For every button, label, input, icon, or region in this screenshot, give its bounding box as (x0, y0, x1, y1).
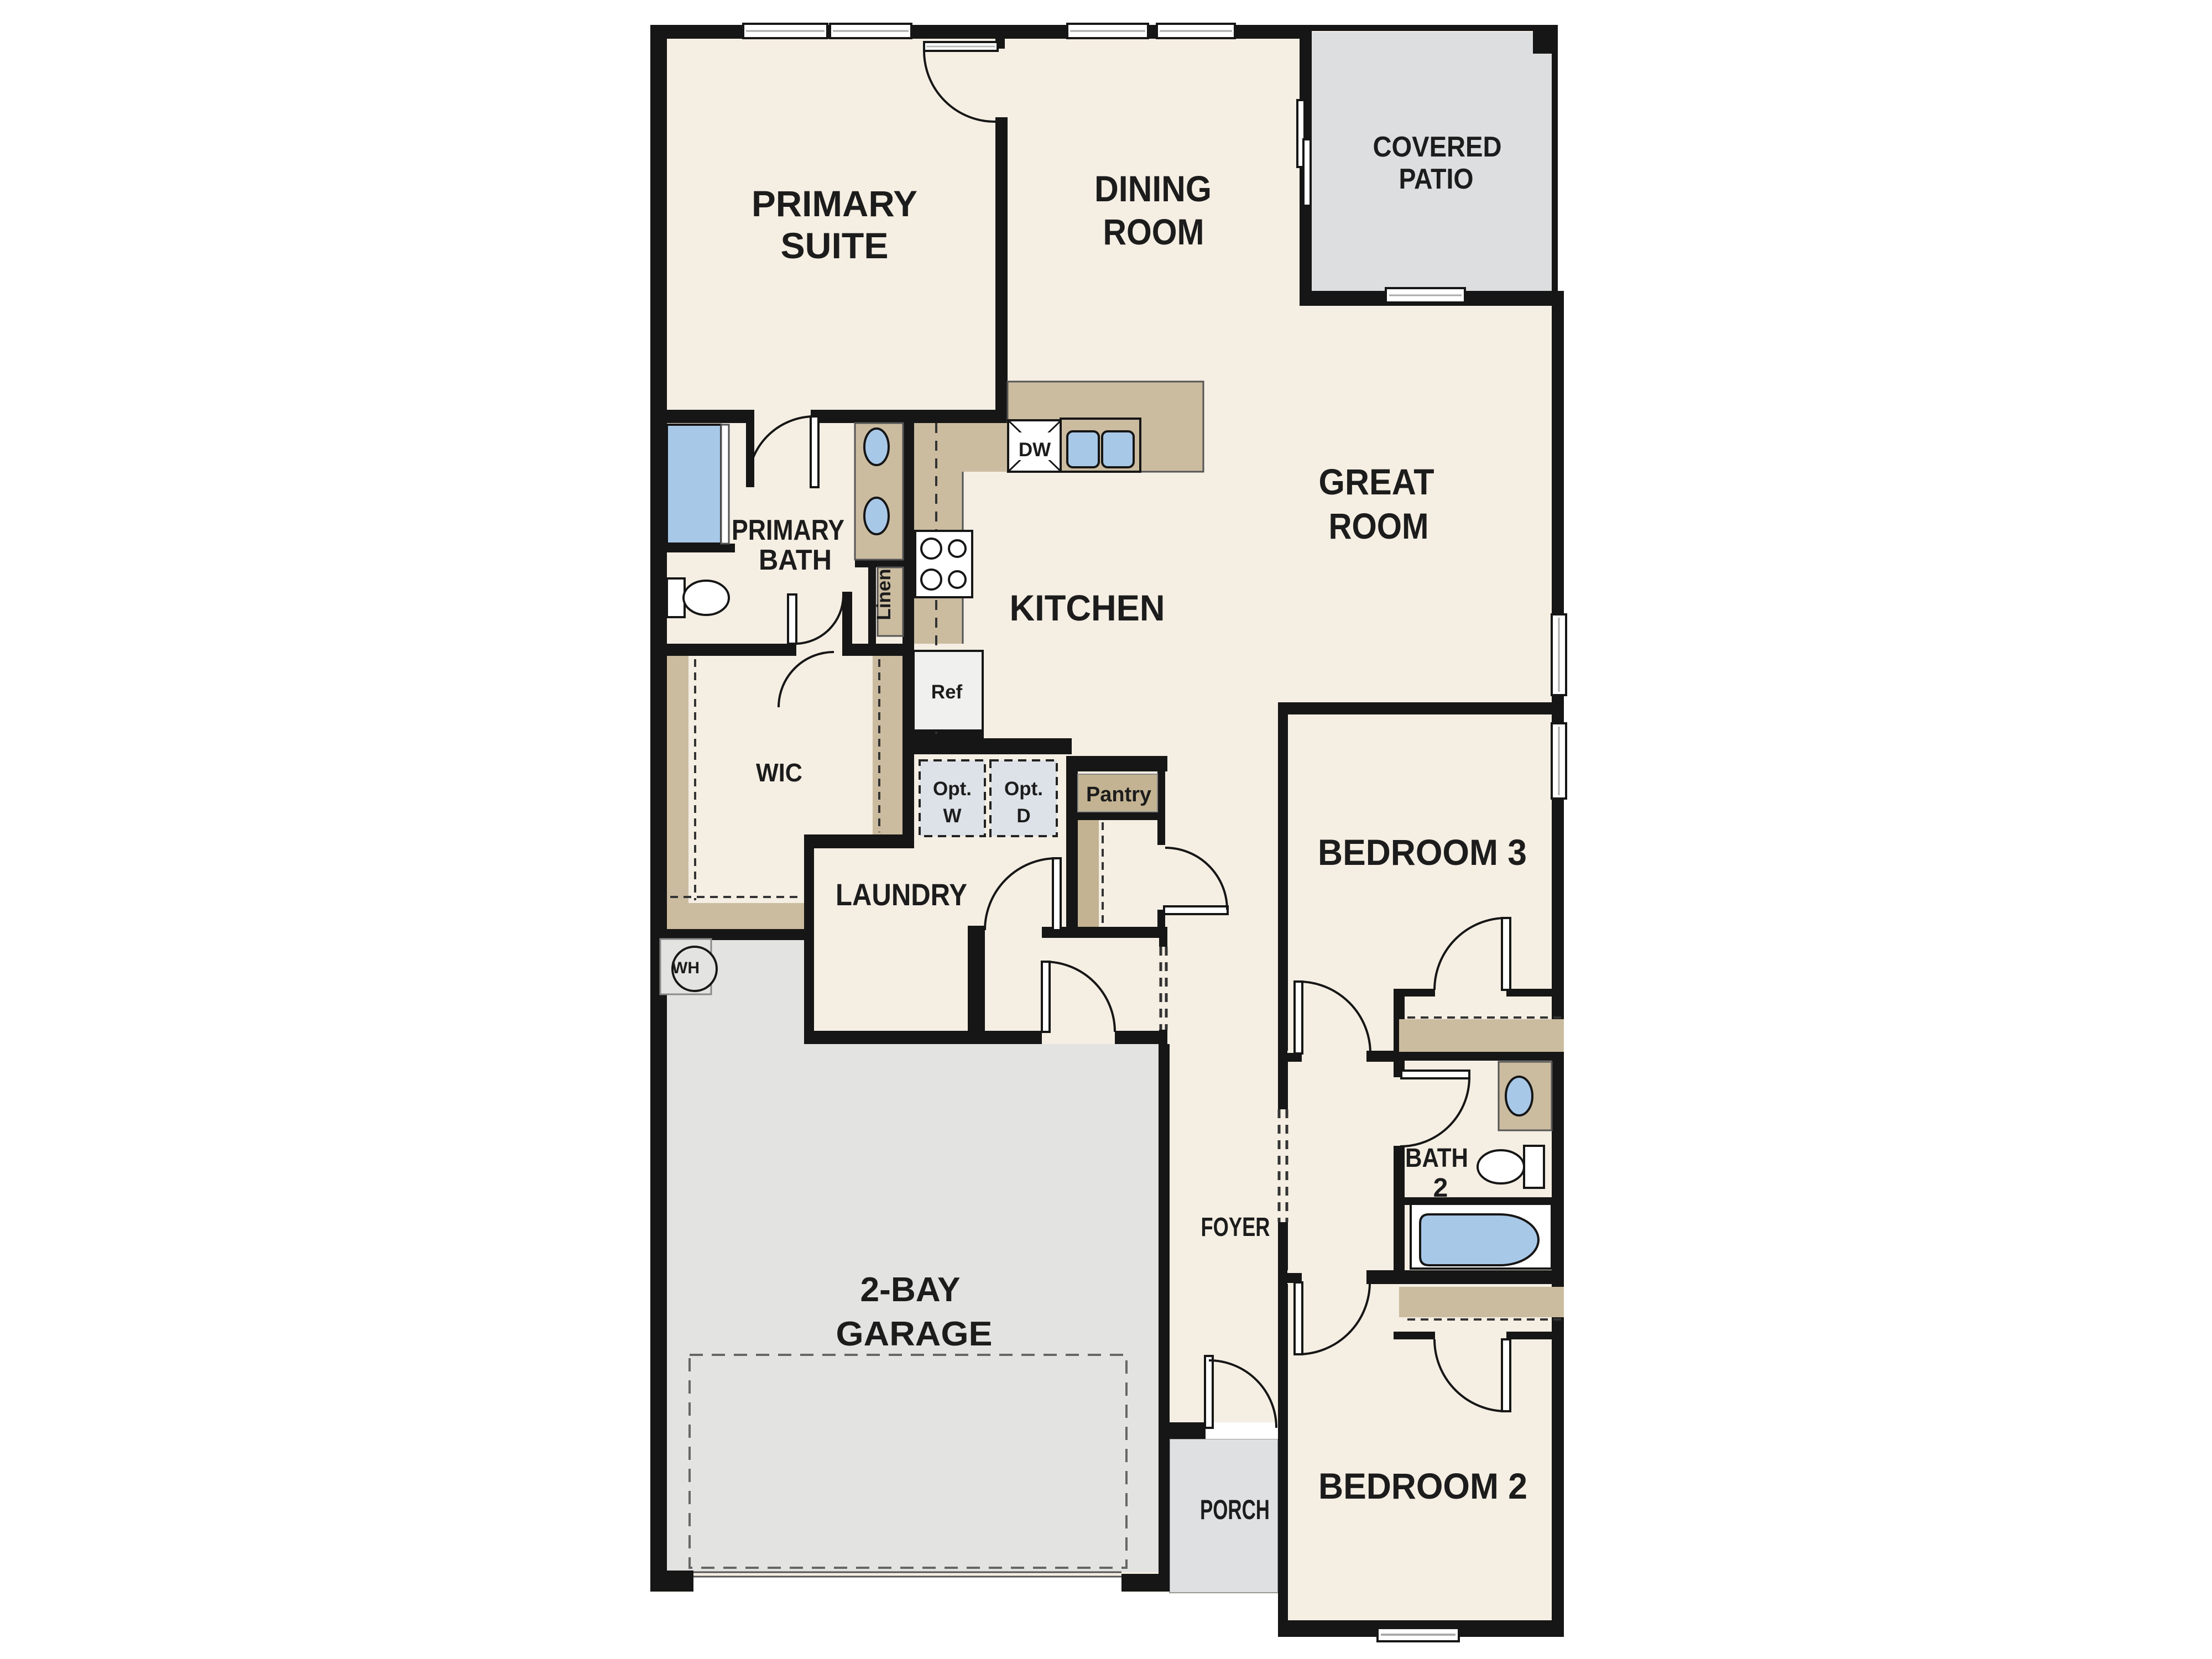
svg-text:W: W (943, 805, 961, 827)
svg-text:SUITE: SUITE (781, 225, 889, 266)
svg-text:WH: WH (672, 959, 700, 977)
svg-text:GARAGE: GARAGE (836, 1315, 993, 1353)
svg-text:FOYER: FOYER (1201, 1213, 1270, 1242)
svg-text:BEDROOM 2: BEDROOM 2 (1318, 1465, 1527, 1506)
svg-text:PATIO: PATIO (1399, 163, 1474, 195)
svg-text:2: 2 (1433, 1173, 1448, 1203)
svg-text:Pantry: Pantry (1086, 783, 1151, 806)
svg-text:GREAT: GREAT (1319, 461, 1434, 502)
svg-text:DINING: DINING (1094, 168, 1212, 209)
svg-text:KITCHEN: KITCHEN (1010, 587, 1165, 628)
svg-text:COVERED: COVERED (1373, 131, 1502, 163)
svg-text:BEDROOM 3: BEDROOM 3 (1318, 832, 1527, 873)
svg-text:DW: DW (1019, 439, 1051, 461)
svg-text:Opt.: Opt. (1004, 778, 1043, 800)
svg-text:LAUNDRY: LAUNDRY (836, 877, 967, 912)
svg-text:Linen: Linen (873, 568, 895, 620)
svg-text:Ref: Ref (931, 681, 963, 703)
svg-text:PORCH: PORCH (1200, 1494, 1270, 1525)
svg-text:PRIMARY: PRIMARY (732, 514, 844, 546)
svg-text:Opt.: Opt. (933, 778, 972, 800)
svg-text:ROOM: ROOM (1329, 505, 1429, 546)
svg-text:ROOM: ROOM (1103, 211, 1204, 252)
svg-text:BATH: BATH (1405, 1144, 1468, 1173)
svg-text:BATH: BATH (759, 544, 832, 576)
svg-text:D: D (1016, 805, 1030, 827)
svg-text:PRIMARY: PRIMARY (752, 183, 917, 224)
svg-text:2-BAY: 2-BAY (860, 1271, 961, 1309)
svg-text:WIC: WIC (756, 758, 802, 787)
